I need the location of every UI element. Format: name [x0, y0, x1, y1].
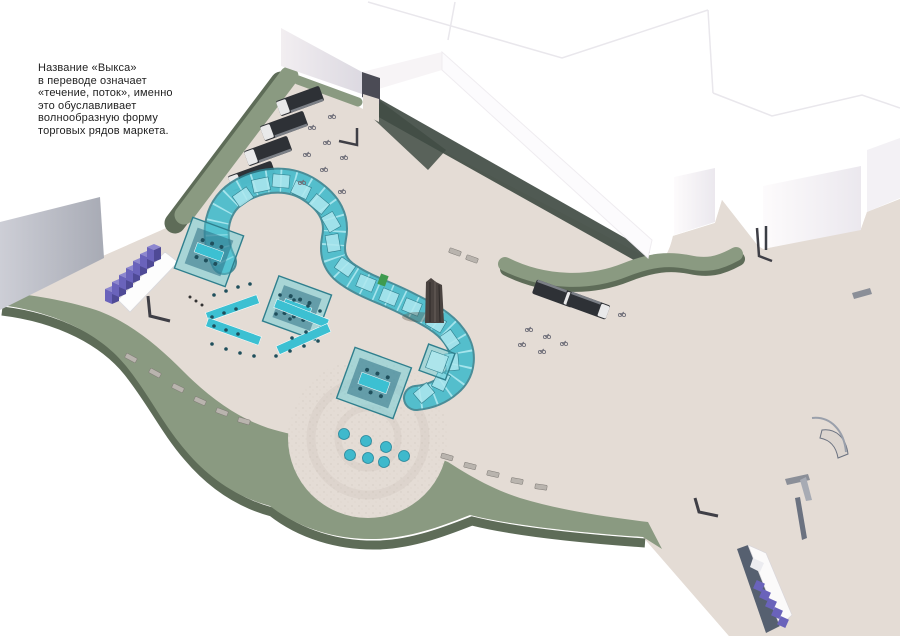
render-canvas: Название «Выкса» в переводе означает «те… [0, 0, 900, 636]
annotation-text: Название «Выкса» в переводе означает «те… [38, 62, 238, 138]
annotation-line: волнообразную форму [38, 112, 238, 125]
annotation-line: это обуславливает [38, 100, 238, 113]
dome [360, 436, 372, 447]
dome [380, 442, 392, 453]
dome [398, 451, 410, 462]
dome [338, 429, 350, 440]
annotation-line: в переводе означает [38, 75, 238, 88]
annotation-line: Название «Выкса» [38, 62, 238, 75]
dome [378, 457, 390, 468]
dome [362, 453, 374, 464]
dome [344, 450, 356, 461]
annotation-line: «течение, поток», именно [38, 87, 238, 100]
annotation-line: торговых рядов маркета. [38, 125, 238, 138]
